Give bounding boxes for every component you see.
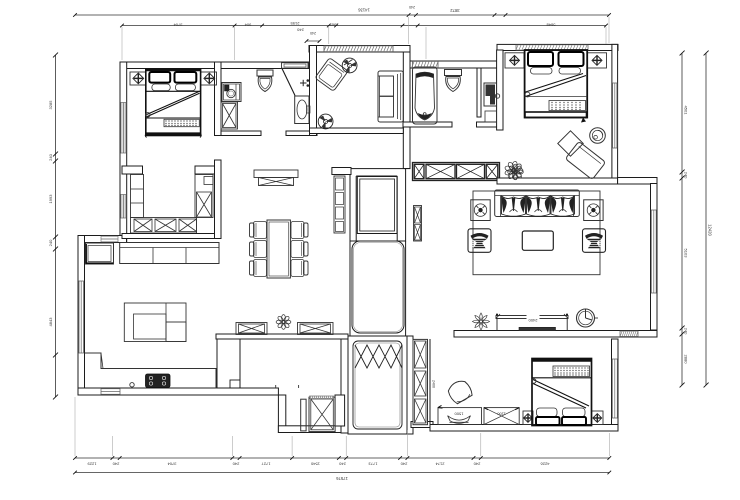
svg-text:240: 240 (310, 31, 316, 35)
svg-text:2880: 2880 (684, 355, 689, 365)
svg-text:4226: 4226 (540, 462, 550, 467)
svg-text:1500: 1500 (454, 411, 464, 416)
svg-text:2400: 2400 (432, 380, 436, 388)
svg-text:904: 904 (244, 23, 251, 28)
svg-text:2174: 2174 (435, 462, 445, 467)
svg-text:240: 240 (409, 5, 415, 9)
svg-text:1229: 1229 (87, 462, 97, 467)
svg-text:1100: 1100 (497, 412, 506, 417)
svg-text:240: 240 (684, 172, 689, 179)
svg-text:14136: 14136 (358, 8, 370, 13)
svg-text:240: 240 (473, 462, 480, 467)
svg-text:240: 240 (48, 239, 53, 246)
svg-text:5648: 5648 (546, 23, 556, 28)
svg-text:1727: 1727 (261, 462, 271, 467)
svg-text:3704: 3704 (167, 462, 177, 467)
svg-text:240: 240 (338, 462, 345, 467)
svg-text:240: 240 (112, 462, 119, 467)
svg-text:240: 240 (232, 462, 239, 467)
svg-text:3704: 3704 (173, 23, 183, 28)
svg-text:3285: 3285 (48, 100, 53, 110)
svg-text:5103: 5103 (684, 249, 689, 259)
svg-text:2965: 2965 (329, 23, 339, 28)
svg-text:1993: 1993 (48, 194, 53, 204)
svg-text:4501: 4501 (684, 106, 689, 116)
svg-text:1773: 1773 (368, 462, 378, 467)
svg-text:240: 240 (296, 28, 303, 33)
svg-text:3872: 3872 (450, 8, 460, 13)
svg-text:1540: 1540 (310, 462, 320, 467)
svg-text:12420: 12420 (708, 224, 713, 236)
svg-text:17576: 17576 (336, 476, 348, 481)
svg-text:240: 240 (400, 462, 407, 467)
svg-text:240: 240 (48, 153, 53, 160)
svg-text:2400: 2400 (528, 318, 538, 323)
svg-text:2195: 2195 (290, 21, 300, 26)
svg-text:240: 240 (684, 328, 689, 335)
svg-text:4843: 4843 (48, 317, 53, 327)
